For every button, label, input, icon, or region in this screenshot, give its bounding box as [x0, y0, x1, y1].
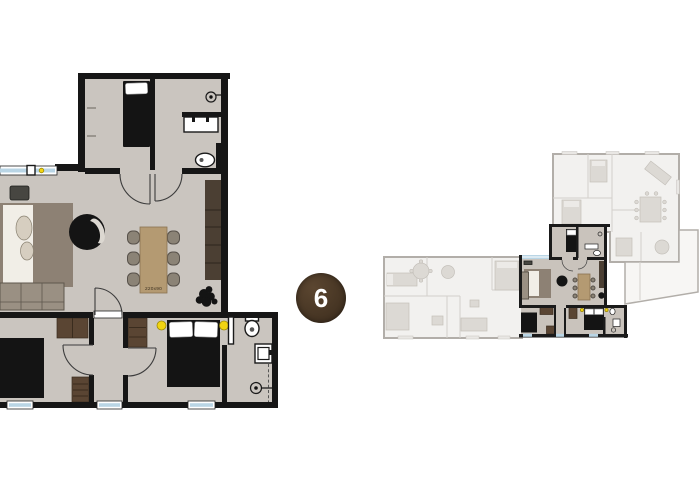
dining-table-size-label: 220x90	[145, 286, 162, 292]
mini-armchair-icon	[557, 276, 568, 287]
mini-dining-table-icon	[578, 274, 590, 300]
feature-wall	[205, 180, 222, 280]
unit-number-badge: 6	[296, 273, 346, 323]
chair-icon	[128, 252, 140, 265]
mini-sink-icon	[585, 244, 598, 249]
floorplan-canvas: 220x90	[0, 0, 700, 500]
neighbor-unit-left	[384, 257, 522, 339]
bed-icon	[0, 338, 44, 398]
sill-planter	[27, 166, 35, 176]
lamp-icon	[157, 321, 166, 330]
pillow	[194, 322, 218, 338]
chair-icon	[168, 252, 180, 265]
chair-icon	[168, 273, 180, 286]
pouf-icon	[21, 242, 34, 260]
mini-toilet-icon	[594, 250, 601, 255]
toilet-icon	[196, 153, 215, 167]
tv-icon	[10, 186, 29, 200]
dining-set: 220x90	[128, 227, 180, 293]
pillow	[125, 83, 147, 95]
mini-plant-icon	[598, 292, 604, 298]
chair-icon	[128, 231, 140, 244]
window	[97, 401, 122, 409]
sink-icon	[184, 117, 218, 132]
shelf-icon	[87, 107, 96, 109]
toilet-icon	[245, 315, 259, 337]
chair-icon	[168, 231, 180, 244]
window	[188, 401, 215, 409]
dining-table-icon	[140, 227, 167, 293]
wardrobe-icon	[128, 318, 147, 347]
sofa-icon	[0, 283, 64, 310]
pouf-icon	[16, 216, 32, 240]
window-band-top	[0, 166, 57, 176]
unit-number-label: 6	[314, 283, 328, 314]
chair-icon	[128, 273, 140, 286]
detail-floorplan: 220x90	[0, 73, 278, 409]
door-bathroom-bottom	[229, 317, 234, 344]
floorplan-sheet: 220x90	[0, 0, 700, 500]
sink-icon	[255, 344, 273, 363]
pillow	[169, 322, 193, 338]
shelf-icon	[87, 135, 96, 137]
lamp-icon	[220, 321, 229, 330]
overview-floorplan	[384, 152, 698, 340]
sill-decor	[39, 168, 44, 173]
mini-bed-icon	[521, 313, 537, 333]
window	[7, 401, 33, 409]
